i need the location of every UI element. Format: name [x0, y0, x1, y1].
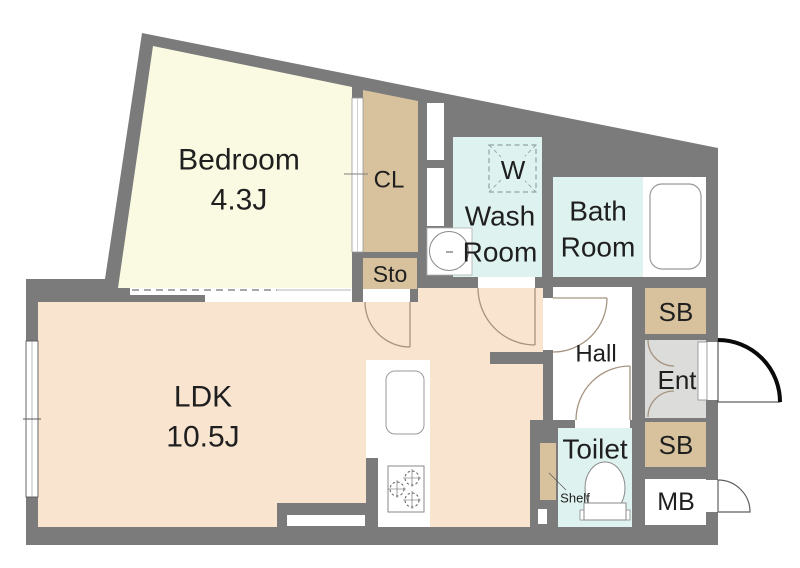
floor-plan: Bedroom 4.3J LDK 10.5J CL Sto W Wash Roo…	[0, 0, 800, 568]
shelf-label: Shelf	[560, 491, 590, 506]
entrance-label: Ent	[657, 365, 697, 395]
toilet-shelf	[540, 443, 556, 500]
meter-box-door-swing	[718, 480, 750, 512]
ldk-label: LDK	[174, 381, 232, 414]
hall-door-opening	[543, 298, 553, 350]
storage-door-opening	[363, 289, 410, 302]
meter-box-door-opening	[706, 480, 718, 512]
shoebox-upper-label: SB	[659, 297, 694, 327]
entrance-door-opening	[706, 342, 718, 400]
floor-plan-page: Bedroom 4.3J LDK 10.5J CL Sto W Wash Roo…	[0, 0, 800, 568]
partition-track-bar	[130, 295, 205, 302]
ldk-size-label: 10.5J	[166, 421, 239, 454]
wall-niche-small	[538, 509, 547, 524]
pipe-space-2	[427, 168, 444, 226]
entrance-door-leaf	[698, 342, 707, 400]
toilet-door-opening	[575, 420, 630, 428]
storage-label: Sto	[373, 261, 408, 287]
washing-machine-label: W	[501, 155, 526, 185]
kitchen-side-wall-stub	[366, 458, 378, 527]
kitchen-lower-wall-inset	[287, 515, 365, 526]
washroom-label-line2: Room	[463, 237, 538, 268]
hall-wall-stub	[490, 352, 553, 364]
kitchen-sink	[386, 371, 424, 434]
washroom-door-opening	[478, 277, 535, 288]
shoebox-lower-label: SB	[659, 430, 694, 460]
ldk-floor	[38, 288, 543, 527]
hall-label: Hall	[575, 341, 616, 368]
closet-label: CL	[374, 167, 405, 194]
bathtub	[650, 184, 701, 269]
bedroom-label: Bedroom	[178, 144, 300, 177]
toilet-label: Toilet	[562, 434, 628, 465]
toilet-tank	[584, 503, 626, 520]
bedroom-size-label: 4.3J	[211, 184, 268, 217]
bathroom-label-line1: Bath	[569, 196, 627, 227]
bathroom-label-line2: Room	[561, 232, 636, 263]
pipe-space-1	[427, 103, 444, 160]
washroom-label-line1: Wash	[465, 201, 536, 232]
meter-box-label: MB	[657, 488, 695, 516]
